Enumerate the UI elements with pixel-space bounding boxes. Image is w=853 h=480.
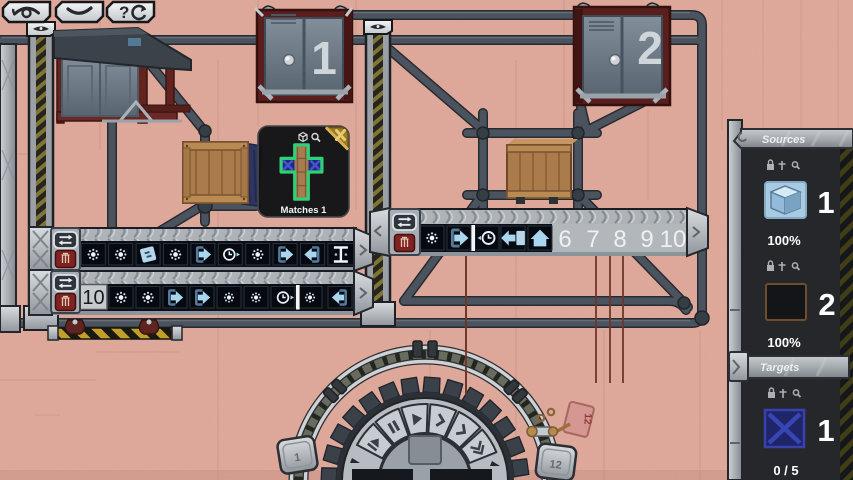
svg-text:12: 12 xyxy=(581,413,592,425)
svg-text:100%: 100% xyxy=(767,335,801,350)
svg-text:Matches 1: Matches 1 xyxy=(281,205,328,216)
svg-text:6: 6 xyxy=(558,226,571,253)
svg-text:Targets: Targets xyxy=(760,362,799,374)
svg-text:1: 1 xyxy=(817,413,834,448)
svg-text:9: 9 xyxy=(640,226,653,253)
svg-text:1: 1 xyxy=(311,32,337,84)
svg-text:100%: 100% xyxy=(767,233,801,248)
svg-text:10: 10 xyxy=(660,226,687,253)
svg-text:Sources: Sources xyxy=(762,134,805,146)
svg-text:7: 7 xyxy=(586,226,599,253)
svg-text:?: ? xyxy=(119,3,129,22)
svg-text:2: 2 xyxy=(637,22,663,74)
svg-text:12: 12 xyxy=(549,458,563,471)
svg-text:0 / 5: 0 / 5 xyxy=(773,463,798,478)
svg-text:2: 2 xyxy=(818,287,835,322)
svg-text:8: 8 xyxy=(613,226,626,253)
svg-text:10: 10 xyxy=(82,287,104,309)
svg-text:1: 1 xyxy=(817,185,834,220)
